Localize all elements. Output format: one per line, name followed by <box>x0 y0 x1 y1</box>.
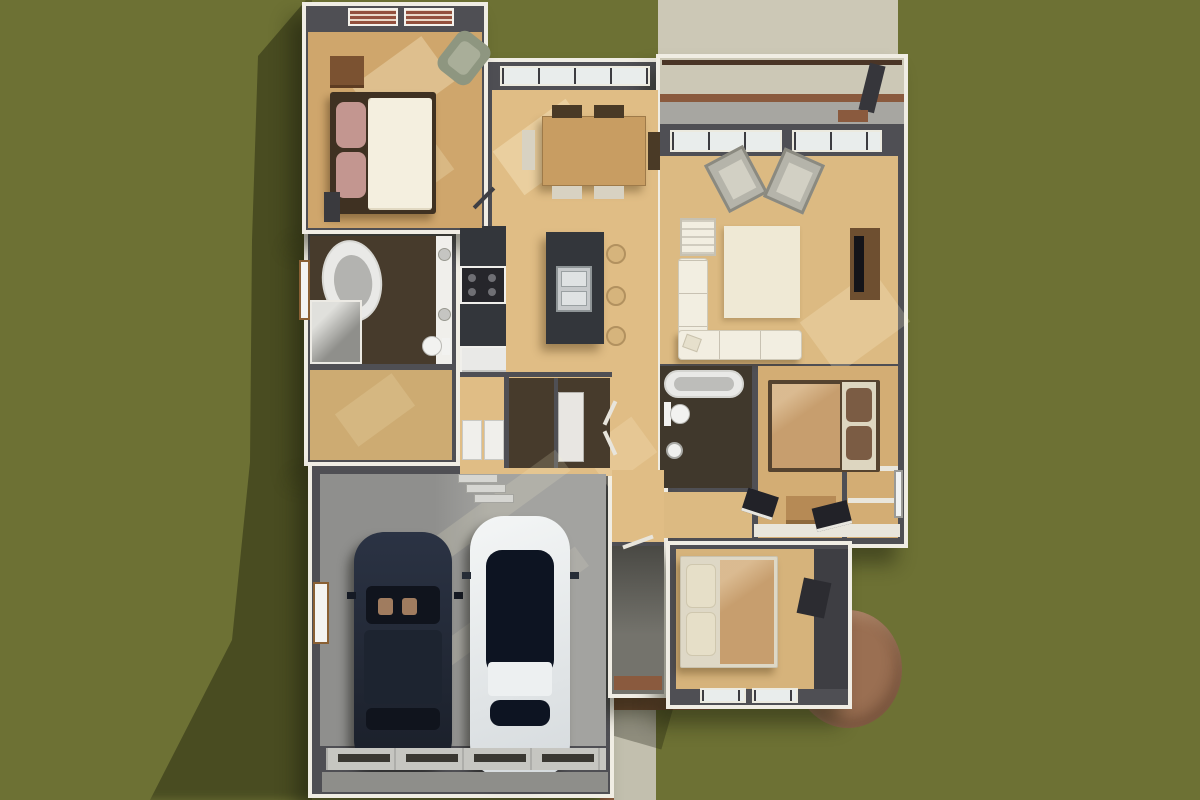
sedan-rear-window <box>490 700 550 726</box>
nightstand <box>330 56 364 88</box>
area-rug <box>724 226 800 318</box>
rear-hall-floor <box>660 492 752 538</box>
bedroom3-duvet <box>720 560 774 664</box>
garage-door-window <box>474 754 526 762</box>
vanity-sink <box>438 248 451 261</box>
kitchen-fridge <box>462 348 506 372</box>
sedan-glass-roof <box>486 550 554 676</box>
dining-bench <box>522 130 535 170</box>
suv-seat <box>378 598 393 615</box>
suv-seat <box>402 598 417 615</box>
stove-burner <box>468 274 476 282</box>
suv-mirror <box>454 592 463 599</box>
living-room-window <box>670 130 782 152</box>
kitchen-counter-marble <box>460 304 506 346</box>
bedroom3-window <box>752 688 798 703</box>
stoop-roof-shadow <box>612 546 664 694</box>
master-bedroom-window <box>404 8 454 26</box>
garage-side-window <box>313 582 329 644</box>
suv-mirror <box>347 592 356 599</box>
dining-chair <box>552 105 582 118</box>
bedroom-dresser <box>324 192 340 222</box>
garage-door-window <box>406 754 458 762</box>
master-toilet-bowl <box>422 336 442 356</box>
garage-entry-step <box>474 494 514 503</box>
dining-window <box>500 66 650 86</box>
garage-entry-step <box>466 484 506 493</box>
closet-door-panel <box>558 392 584 462</box>
washer <box>462 420 482 460</box>
living-armchair <box>680 218 716 256</box>
stove-burner <box>468 288 476 296</box>
vanity-sink <box>438 308 451 321</box>
bar-stool <box>606 244 626 264</box>
porch-wood-beam <box>662 60 902 65</box>
stove-burner <box>488 288 496 296</box>
garage-door-window <box>338 754 390 762</box>
sedan-mirror <box>570 572 579 579</box>
closet-shelf <box>848 498 898 503</box>
hall-bath-sink <box>666 442 683 459</box>
bedroom2-duvet <box>772 384 840 468</box>
island-sink-basin <box>561 271 587 287</box>
kitchen-stove <box>462 268 504 302</box>
sedan-mirror <box>462 572 471 579</box>
suv-rear-window <box>366 708 440 730</box>
chair-cushion <box>445 39 482 77</box>
aerial-floorplan-render <box>0 0 1200 800</box>
bar-stool <box>606 286 626 306</box>
bedroom2-pillow <box>846 388 872 422</box>
master-bed-pillow <box>336 152 366 198</box>
hall-toilet-bowl <box>670 404 690 424</box>
laundry-wall <box>460 372 612 377</box>
dining-chair <box>648 132 660 170</box>
dining-chair <box>552 186 582 199</box>
stove-burner <box>488 274 496 282</box>
dining-table <box>542 116 646 186</box>
foyer-floor <box>612 470 664 542</box>
bedroom3-pillow <box>686 612 716 656</box>
bedroom2-pillow <box>846 426 872 460</box>
chair-cushion <box>718 159 756 199</box>
garage-entry-step <box>458 474 498 483</box>
master-toilet-tank <box>442 338 450 355</box>
dining-chair <box>594 105 624 118</box>
bathroom-side-window <box>299 260 310 320</box>
living-room-window <box>792 130 882 152</box>
master-shower <box>310 300 362 364</box>
suv-roof <box>364 630 442 704</box>
master-bed-duvet <box>368 98 432 210</box>
master-bed-pillow <box>336 102 366 148</box>
master-bedroom-window <box>348 8 398 26</box>
kitchen-counter-marble <box>460 226 506 266</box>
garage-door-lower-band <box>322 772 608 792</box>
chair-cushion <box>776 162 813 202</box>
porch-brick-pad <box>838 110 868 122</box>
dining-chair <box>594 186 624 199</box>
stoop-brick-inlay <box>614 676 662 690</box>
bedroom2-east-window <box>894 470 903 518</box>
sedan-trunk-panel <box>488 662 552 696</box>
tv-screen <box>854 236 864 292</box>
island-sink-basin <box>561 291 587 306</box>
bar-stool <box>606 326 626 346</box>
laundry-wall <box>504 372 509 468</box>
bedroom3-window <box>700 688 746 703</box>
bedroom3-pillow <box>686 564 716 608</box>
garage-door-window <box>542 754 594 762</box>
tub-basin <box>674 377 734 391</box>
bedroom3-east-wall-band <box>814 549 848 689</box>
dryer <box>484 420 504 460</box>
hall-bathtub <box>664 370 744 398</box>
